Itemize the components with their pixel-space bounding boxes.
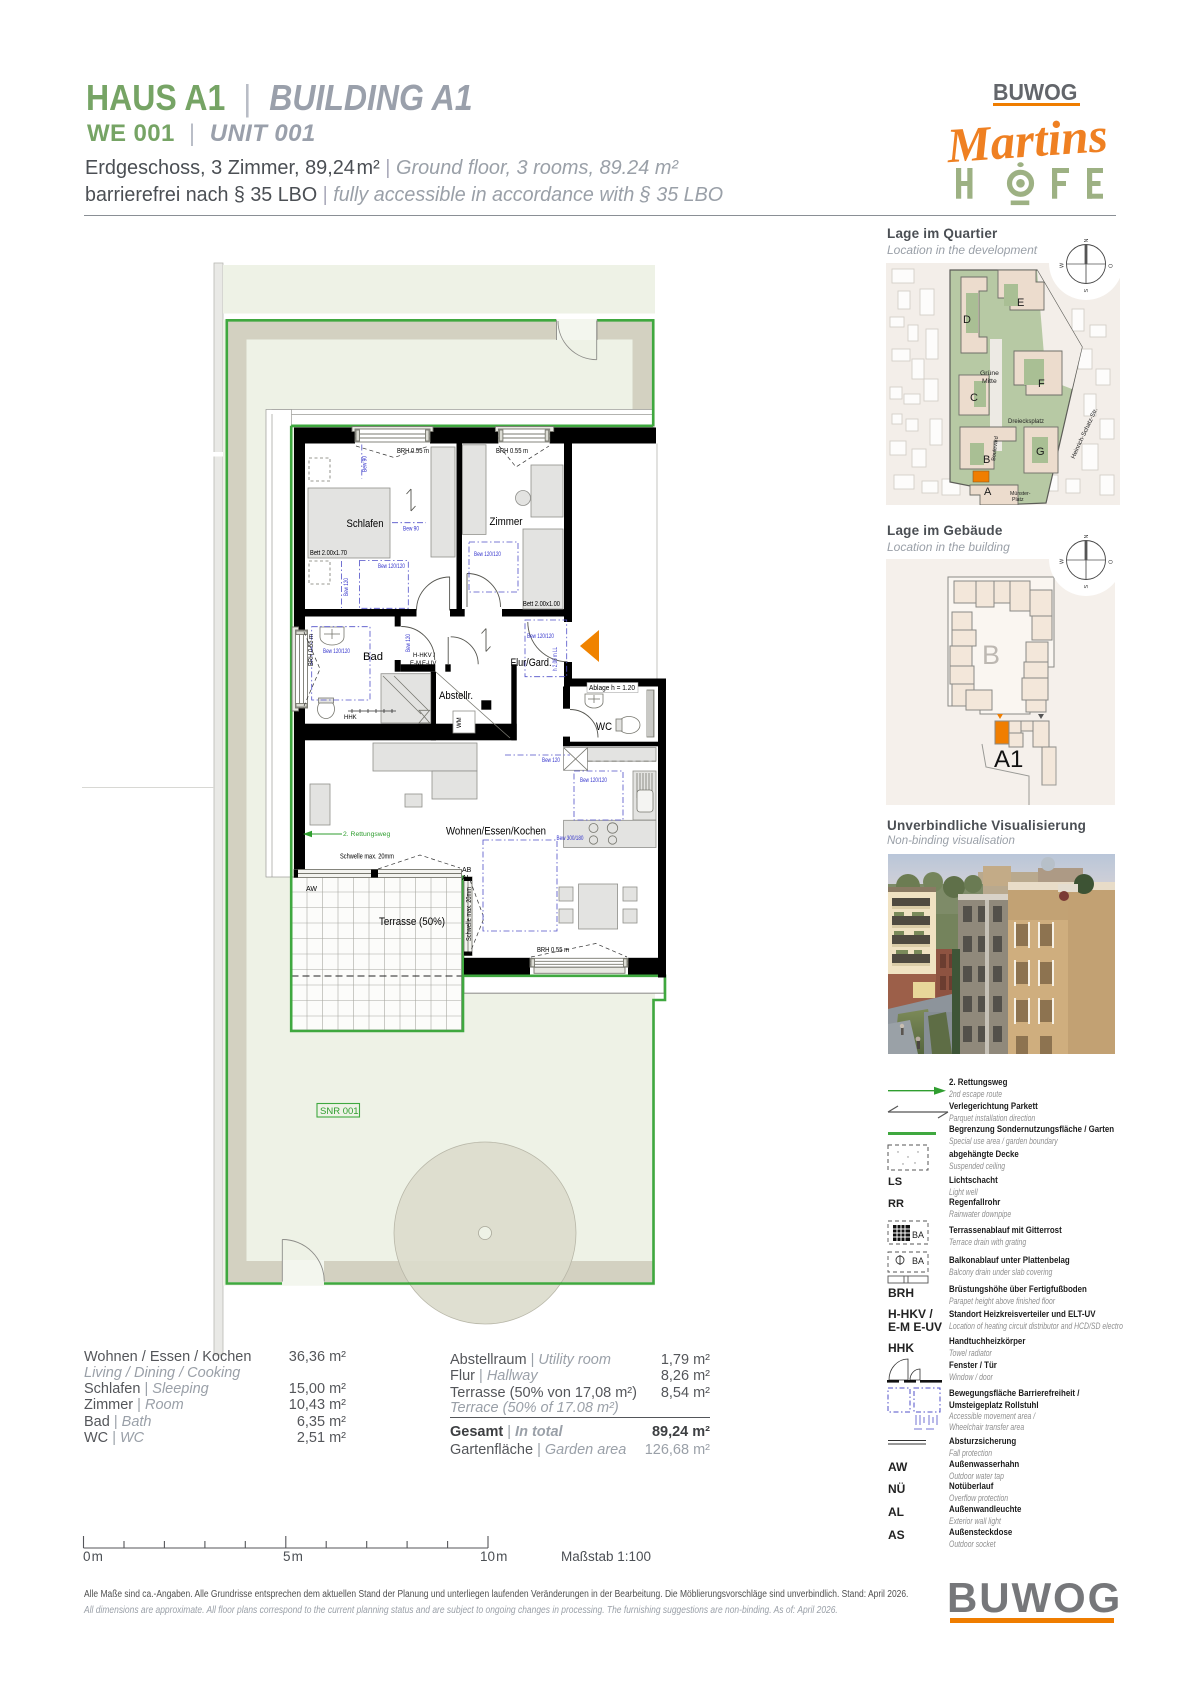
svg-text:S: S (1084, 585, 1090, 589)
svg-text:WC: WC (596, 721, 612, 733)
svg-text:BRH 0.55 m: BRH 0.55 m (496, 446, 528, 455)
svg-text:B: B (982, 640, 1000, 670)
svg-text:S: S (1084, 289, 1090, 293)
svg-text:RR: RR (888, 1198, 904, 1210)
svg-text:D: D (963, 314, 971, 326)
svg-text:Platz: Platz (1012, 497, 1024, 503)
svg-text:N: N (1084, 239, 1090, 243)
svg-text:N: N (1084, 535, 1090, 539)
svg-text:Ablage h = 1.20: Ablage h = 1.20 (589, 685, 635, 692)
svg-text:O: O (1109, 559, 1115, 564)
svg-text:Bew 120/120: Bew 120/120 (378, 563, 405, 570)
svg-text:W: W (1060, 558, 1066, 564)
svg-text:Wohnen/Essen/Kochen: Wohnen/Essen/Kochen (446, 826, 546, 838)
svg-text:Schlafen: Schlafen (347, 518, 384, 530)
svg-text:E: E (1017, 297, 1024, 309)
svg-text:E-M E-UV: E-M E-UV (888, 1320, 942, 1334)
svg-text:NÜ: NÜ (888, 1481, 905, 1496)
svg-text:Dreiecksplatz: Dreiecksplatz (1008, 419, 1044, 425)
svg-text:BRH 0.55 m: BRH 0.55 m (537, 945, 569, 954)
svg-text:Abstellr.: Abstellr. (439, 690, 473, 702)
svg-text:WM: WM (457, 717, 463, 728)
svg-text:BA: BA (912, 1230, 924, 1240)
svg-text:Bew 120: Bew 120 (343, 578, 350, 596)
svg-text:B: B (983, 454, 990, 466)
svg-text:AS: AS (888, 1528, 905, 1542)
svg-text:BRH: BRH (888, 1286, 914, 1300)
svg-text:AW: AW (888, 1460, 908, 1474)
svg-text:HHK: HHK (344, 715, 357, 721)
svg-text:Bew 300/180: Bew 300/180 (557, 835, 584, 842)
svg-text:2. Rettungsweg: 2. Rettungsweg (343, 831, 390, 838)
svg-text:G: G (1036, 446, 1045, 458)
svg-text:AL: AL (462, 875, 471, 882)
svg-text:AB: AB (462, 867, 472, 874)
svg-text:Bett 2.00x1.00: Bett 2.00x1.00 (523, 601, 560, 608)
svg-text:AW: AW (306, 886, 317, 893)
svg-text:Bew 120: Bew 120 (542, 757, 560, 764)
svg-text:Bew 120/120: Bew 120/120 (580, 777, 607, 784)
svg-text:Schwelle max. 20mm: Schwelle max. 20mm (466, 887, 473, 941)
svg-text:h 2,00 m LL: h 2,00 m LL (552, 647, 559, 671)
svg-text:H-HKV /: H-HKV / (888, 1307, 933, 1321)
svg-text:Grüne: Grüne (980, 370, 999, 377)
svg-text:HHK: HHK (888, 1341, 914, 1355)
svg-text:Bett 2.00x1.70: Bett 2.00x1.70 (310, 550, 347, 557)
svg-text:O: O (1109, 263, 1115, 268)
svg-text:A1: A1 (994, 746, 1023, 773)
svg-text:LS: LS (888, 1176, 902, 1188)
svg-text:Bew 120: Bew 120 (405, 634, 412, 652)
svg-text:Bew 120/120: Bew 120/120 (527, 633, 554, 640)
svg-text:Zimmer: Zimmer (490, 516, 523, 528)
svg-text:Bew 120/120: Bew 120/120 (323, 648, 350, 655)
svg-text:Terrasse (50%): Terrasse (50%) (379, 916, 445, 928)
svg-text:C: C (970, 392, 978, 404)
svg-text:BA: BA (912, 1256, 924, 1266)
svg-text:H-HKV /: H-HKV / (413, 653, 435, 659)
svg-text:F: F (1038, 378, 1045, 390)
svg-text:Schwelle max. 20mm: Schwelle max. 20mm (340, 854, 394, 861)
svg-text:SNR 001: SNR 001 (320, 1106, 359, 1117)
svg-text:Flur/Gard.: Flur/Gard. (511, 657, 552, 669)
svg-text:Bad: Bad (363, 651, 383, 663)
svg-text:BRH 0.55 m: BRH 0.55 m (397, 446, 429, 455)
svg-text:BRH 0.55 m: BRH 0.55 m (306, 634, 315, 666)
svg-text:W: W (1060, 262, 1066, 268)
svg-text:Bew 90: Bew 90 (403, 526, 419, 533)
svg-text:AL: AL (888, 1505, 904, 1519)
svg-text:E-M E-UV: E-M E-UV (410, 661, 436, 667)
svg-text:Bew 120/120: Bew 120/120 (474, 551, 501, 558)
svg-text:Bew 90: Bew 90 (362, 456, 369, 472)
svg-text:Mitte: Mitte (982, 378, 997, 385)
svg-text:A: A (984, 486, 992, 498)
